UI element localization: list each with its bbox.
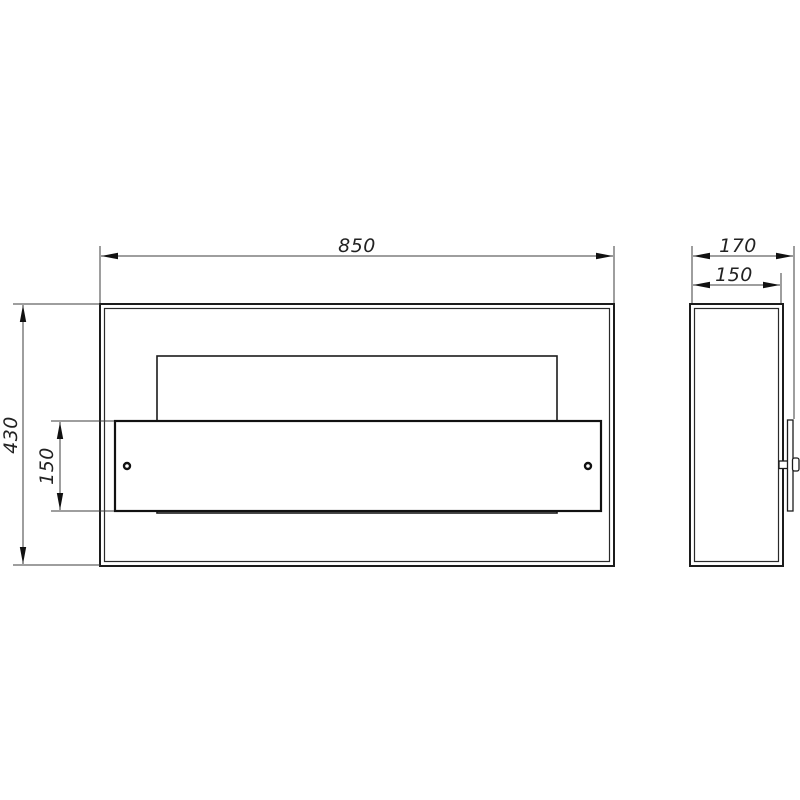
dimension-front-height: 430 bbox=[0, 304, 100, 565]
arrowhead-up-icon bbox=[57, 422, 63, 439]
glass-panel bbox=[115, 421, 601, 511]
front-view bbox=[100, 304, 614, 566]
side-screw-head bbox=[793, 458, 800, 471]
arrowhead-right-icon bbox=[596, 253, 613, 259]
arrowhead-left-icon bbox=[101, 253, 118, 259]
technical-drawing: 850 430 150 170 bbox=[0, 0, 800, 800]
screw-hole-right-icon bbox=[585, 463, 591, 469]
drawing-canvas: 850 430 150 170 bbox=[0, 0, 800, 800]
dimension-front-width: 850 bbox=[100, 235, 614, 303]
side-body-outline bbox=[690, 304, 783, 566]
arrowhead-left-icon bbox=[693, 282, 710, 288]
dimension-value: 150 bbox=[715, 264, 753, 286]
side-body-inner-line bbox=[695, 309, 779, 562]
arrowhead-down-icon bbox=[57, 493, 63, 510]
dimension-value: 170 bbox=[719, 235, 757, 257]
dimension-side-body-depth: 150 bbox=[693, 264, 781, 303]
arrowhead-up-icon bbox=[20, 305, 26, 322]
arrowhead-right-icon bbox=[776, 253, 793, 259]
arrowhead-right-icon bbox=[763, 282, 780, 288]
dimension-value: 850 bbox=[338, 235, 376, 257]
arrowhead-down-icon bbox=[20, 547, 26, 564]
dimension-value: 150 bbox=[36, 447, 58, 485]
side-view bbox=[690, 304, 799, 566]
screw-hole-left-icon bbox=[124, 463, 130, 469]
dimension-panel-height: 150 bbox=[36, 421, 114, 511]
arrowhead-left-icon bbox=[693, 253, 710, 259]
dimension-value: 430 bbox=[0, 416, 22, 454]
